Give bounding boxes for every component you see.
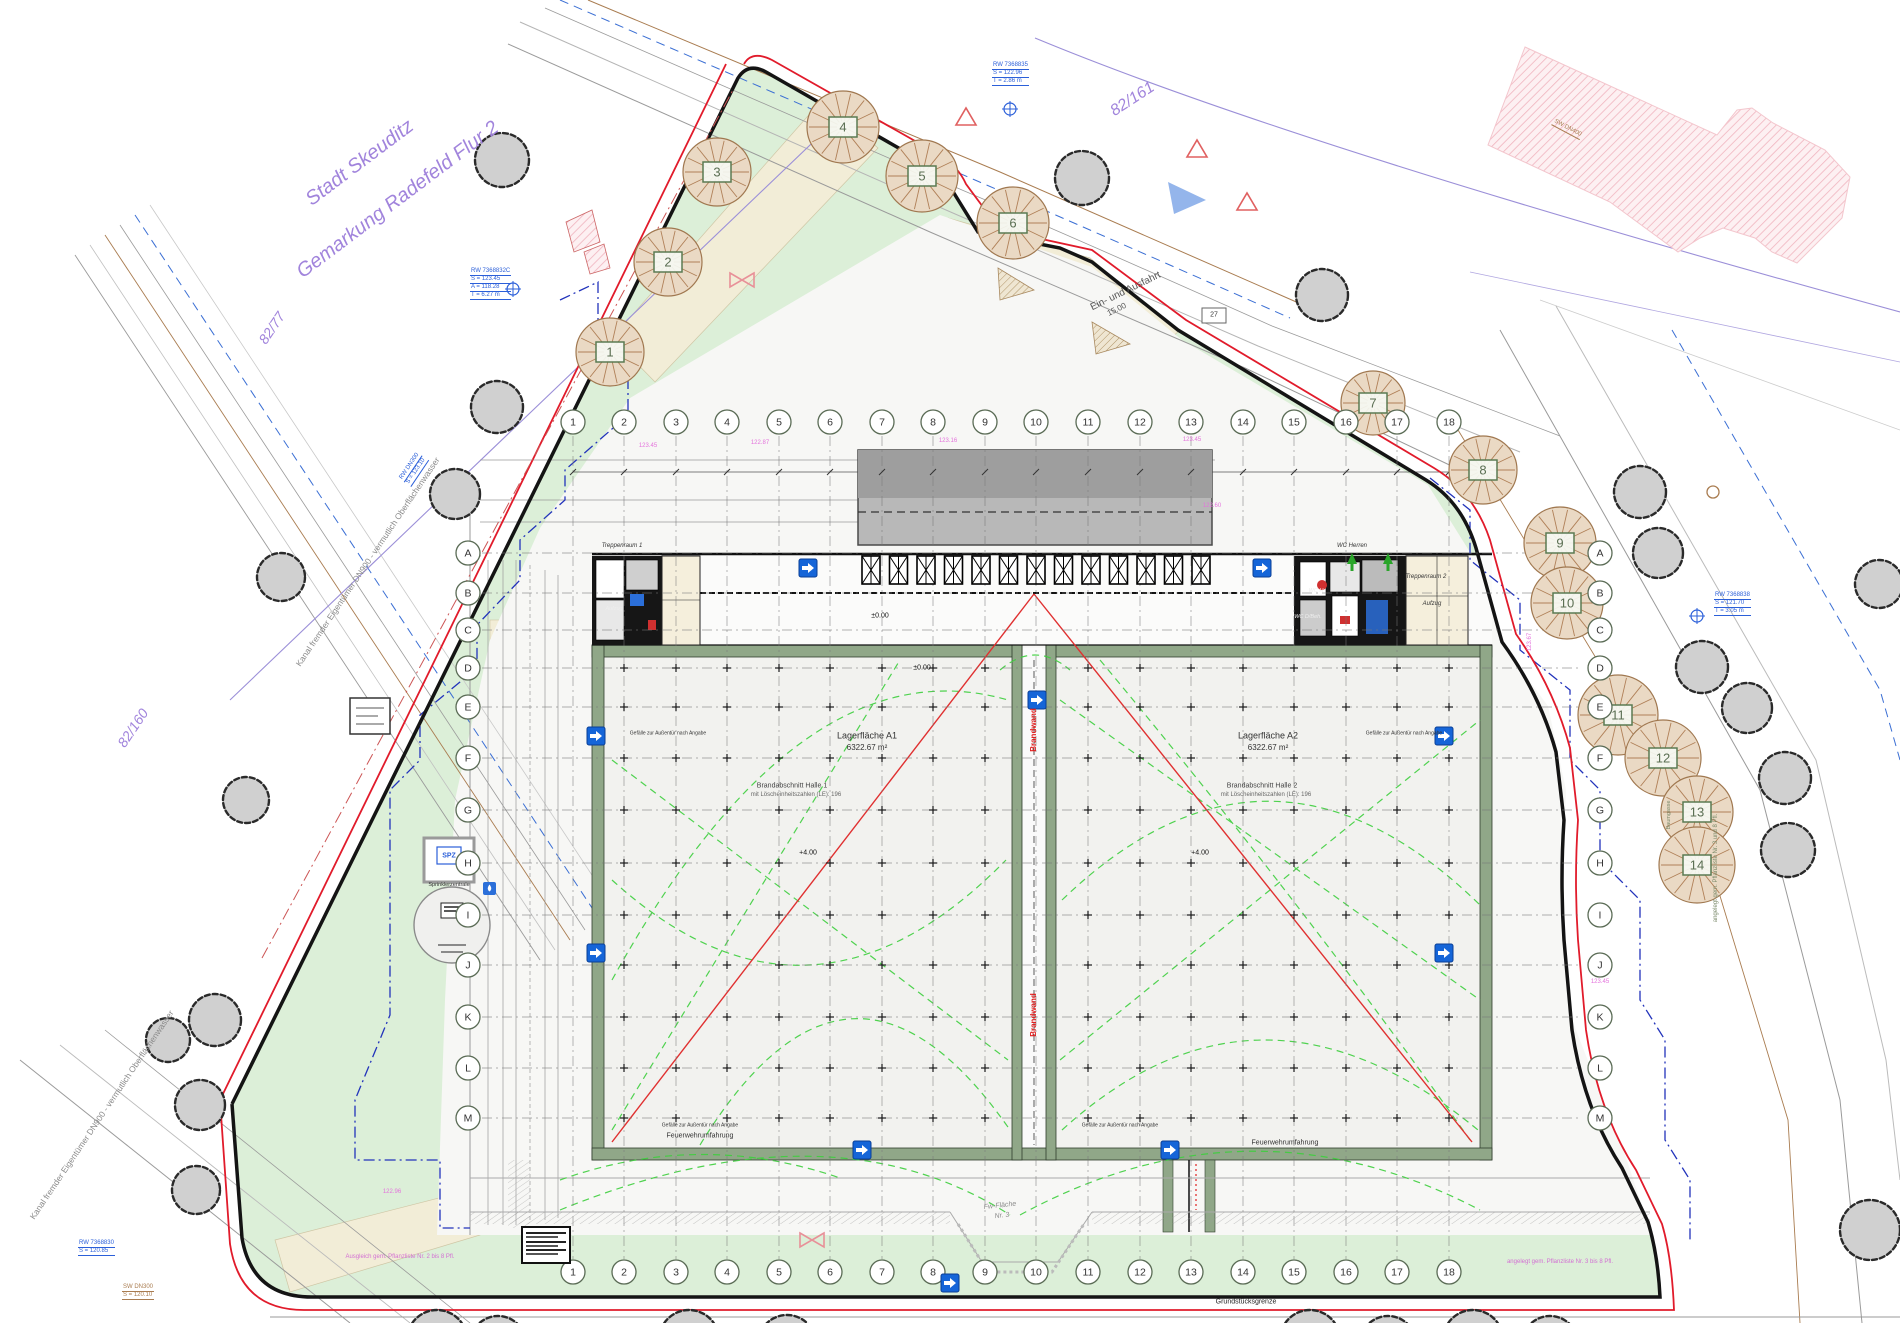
dock-door xyxy=(890,556,908,584)
grid-bubble-label: L xyxy=(465,1063,471,1075)
grid-bubble-label: 3 xyxy=(673,417,679,429)
grid-bubble-label: 3 xyxy=(673,1267,679,1279)
door-swing-icon xyxy=(853,1141,871,1159)
existing-tree-icon xyxy=(1676,641,1728,693)
existing-tree-icon xyxy=(175,1080,225,1130)
grid-bubble-label: 11 xyxy=(1083,1267,1094,1279)
existing-tree-icon xyxy=(1055,151,1109,205)
grid-bubble-label: C xyxy=(1596,625,1604,637)
existing-tree-crown xyxy=(175,1080,225,1130)
grid-bubble-label: G xyxy=(464,805,472,817)
planted-tree-number: 1 xyxy=(606,345,613,360)
grid-letter-right: L xyxy=(1588,1056,1612,1080)
grid-letter-right: D xyxy=(1588,656,1612,680)
grid-letter-left: D xyxy=(456,656,480,680)
existing-tree-icon xyxy=(172,1166,220,1214)
grid-number-top: 3 xyxy=(664,410,688,434)
existing-tree-crown xyxy=(1296,269,1348,321)
door-swing-icon xyxy=(1435,944,1453,962)
office-block-left xyxy=(592,556,700,645)
grid-bubble-label: E xyxy=(464,702,471,714)
grid-letter-left: M xyxy=(456,1106,480,1130)
grid-number-bottom: 13 xyxy=(1179,1260,1203,1284)
grid-bubble-label: 9 xyxy=(982,1267,988,1279)
grid-letter-right: J xyxy=(1588,953,1612,977)
door-swing-icon xyxy=(1253,559,1271,577)
existing-tree-icon xyxy=(1722,683,1772,733)
grid-bubble-label: D xyxy=(1596,663,1604,675)
existing-tree-crown xyxy=(1676,641,1728,693)
grid-letter-right: K xyxy=(1588,1005,1612,1029)
grid-number-bottom: 4 xyxy=(715,1260,739,1284)
existing-tree-icon xyxy=(1633,528,1683,578)
grid-letter-right: M xyxy=(1588,1106,1612,1130)
existing-tree-icon xyxy=(223,777,269,823)
grid-number-top: 7 xyxy=(870,410,894,434)
existing-tree-icon xyxy=(146,1018,190,1062)
grid-bubble-label: B xyxy=(464,588,471,600)
planted-tree-icon: 8 xyxy=(1449,436,1517,504)
grid-number-top: 8 xyxy=(921,410,945,434)
grid-bubble-label: I xyxy=(1599,910,1602,922)
grid-bubble-label: 18 xyxy=(1443,417,1455,429)
grid-bubble-label: 17 xyxy=(1391,1267,1403,1279)
grid-letter-left: H xyxy=(456,851,480,875)
existing-tree-crown xyxy=(471,381,523,433)
site-plan-svg: 1234567891011121314 11223344556677889910… xyxy=(0,0,1900,1323)
grid-bubble-label: 1 xyxy=(570,1267,576,1279)
grid-bubble-label: 8 xyxy=(930,417,936,429)
dock-door xyxy=(862,556,880,584)
door-swing-icon xyxy=(941,1274,959,1292)
grid-bubble-label: 2 xyxy=(621,417,627,429)
planted-tree-icon: 14 xyxy=(1659,827,1735,903)
grid-bubble-label: G xyxy=(1596,805,1604,817)
grid-number-bottom: 15 xyxy=(1282,1260,1306,1284)
planted-tree-number: 9 xyxy=(1556,536,1563,551)
planted-tree-number: 6 xyxy=(1009,216,1016,231)
door-swing-icon xyxy=(1435,727,1453,745)
planted-tree-icon: 5 xyxy=(886,140,958,212)
grid-bubble-label: 7 xyxy=(879,417,885,429)
site-plan-canvas[interactable]: 1234567891011121314 11223344556677889910… xyxy=(0,0,1900,1323)
existing-tree-crown xyxy=(1761,823,1815,877)
existing-tree-icon xyxy=(475,133,529,187)
existing-tree-icon xyxy=(1855,560,1900,608)
grid-bubble-label: 2 xyxy=(621,1267,627,1279)
grid-letter-right: I xyxy=(1588,903,1612,927)
grid-bubble-label: 14 xyxy=(1237,417,1249,429)
grid-bubble-label: D xyxy=(464,663,472,675)
existing-tree-icon xyxy=(1840,1200,1900,1260)
grid-letter-right: B xyxy=(1588,581,1612,605)
grid-number-bottom: 7 xyxy=(870,1260,894,1284)
grid-letter-left: F xyxy=(456,746,480,770)
planted-tree-number: 14 xyxy=(1690,858,1704,873)
planted-tree-number: 11 xyxy=(1611,708,1625,723)
dock-door xyxy=(1110,556,1128,584)
grid-bubble-label: 13 xyxy=(1185,1267,1197,1279)
grid-number-bottom: 3 xyxy=(664,1260,688,1284)
grid-letter-left: E xyxy=(456,695,480,719)
grid-number-bottom: 12 xyxy=(1128,1260,1152,1284)
grid-letter-left: I xyxy=(456,903,480,927)
existing-tree-crown xyxy=(1855,560,1900,608)
door-swing-icon xyxy=(1028,691,1046,709)
dock-door xyxy=(1082,556,1100,584)
grid-number-top: 6 xyxy=(818,410,842,434)
existing-tree-icon xyxy=(257,553,305,601)
existing-tree-icon xyxy=(1296,269,1348,321)
existing-tree-crown xyxy=(758,1315,816,1323)
existing-tree-crown xyxy=(430,469,480,519)
hall-2 xyxy=(1056,657,1480,1148)
grid-number-bottom: 17 xyxy=(1385,1260,1409,1284)
grid-bubble-label: B xyxy=(1596,588,1603,600)
existing-tree-crown xyxy=(223,777,269,823)
grid-bubble-label: E xyxy=(1596,702,1603,714)
grid-bubble-label: 9 xyxy=(982,417,988,429)
building xyxy=(508,554,1492,1232)
existing-tree-crown xyxy=(189,994,241,1046)
grid-bubble-label: 18 xyxy=(1443,1267,1455,1279)
grid-bubble-label: 16 xyxy=(1340,417,1352,429)
grid-bubble-label: K xyxy=(1596,1012,1603,1024)
grid-bubble-label: J xyxy=(1597,960,1602,972)
manhole-icon xyxy=(1689,608,1705,624)
grid-bubble-label: 8 xyxy=(930,1267,936,1279)
existing-tree-crown xyxy=(1759,752,1811,804)
office-block-right xyxy=(1294,556,1468,645)
existing-tree-crown xyxy=(1722,683,1772,733)
grid-bubble-label: 16 xyxy=(1340,1267,1352,1279)
grid-bubble-label: J xyxy=(465,960,470,972)
existing-tree-icon xyxy=(758,1315,816,1323)
grid-bubble-label: 5 xyxy=(776,417,782,429)
loading-canopy xyxy=(858,450,1212,545)
grid-letter-left: C xyxy=(456,618,480,642)
dock-door xyxy=(945,556,963,584)
grid-bubble-label: 1 xyxy=(570,417,576,429)
grid-number-top: 14 xyxy=(1231,410,1255,434)
grid-bubble-label: H xyxy=(1596,858,1604,870)
grid-number-bottom: 14 xyxy=(1231,1260,1255,1284)
grid-letter-right: H xyxy=(1588,851,1612,875)
grid-bubble-label: 15 xyxy=(1288,1267,1300,1279)
grid-bubble-label: M xyxy=(464,1113,473,1125)
existing-tree-crown xyxy=(172,1166,220,1214)
grid-bubble-label: L xyxy=(1597,1063,1603,1075)
planted-tree-icon: 2 xyxy=(634,228,702,296)
dock-door xyxy=(1000,556,1018,584)
grid-bubble-label: A xyxy=(464,548,471,560)
grid-bubble-label: 10 xyxy=(1030,417,1042,429)
grid-bubble-label: M xyxy=(1596,1113,1605,1125)
grid-number-top: 10 xyxy=(1024,410,1048,434)
door-swing-icon xyxy=(1161,1141,1179,1159)
grid-number-bottom: 1 xyxy=(561,1260,585,1284)
existing-tree-crown xyxy=(1055,151,1109,205)
planted-tree-icon: 4 xyxy=(807,91,879,163)
planted-tree-number: 8 xyxy=(1479,463,1486,478)
grid-bubble-label: 5 xyxy=(776,1267,782,1279)
planted-tree-number: 10 xyxy=(1560,596,1574,611)
planted-tree-number: 5 xyxy=(918,169,925,184)
planted-tree-number: 2 xyxy=(664,255,671,270)
warning-triangle-icon xyxy=(1237,193,1257,210)
grid-number-top: 15 xyxy=(1282,410,1306,434)
manhole-icon xyxy=(505,281,521,297)
grid-bubble-label: 15 xyxy=(1288,417,1300,429)
grid-letter-left: K xyxy=(456,1005,480,1029)
door-swing-icon xyxy=(799,559,817,577)
sewer-manhole-icon xyxy=(1707,486,1719,498)
grid-letter-left: A xyxy=(456,541,480,565)
grid-number-top: 16 xyxy=(1334,410,1358,434)
grid-bubble-label: K xyxy=(464,1012,471,1024)
grid-number-bottom: 9 xyxy=(973,1260,997,1284)
grid-bubble-label: 6 xyxy=(827,1267,833,1279)
existing-tree-crown xyxy=(146,1018,190,1062)
grid-letter-right: G xyxy=(1588,798,1612,822)
existing-tree-icon xyxy=(430,469,480,519)
grid-letter-left: B xyxy=(456,581,480,605)
planted-tree-icon: 6 xyxy=(977,187,1049,259)
existing-tree-crown xyxy=(475,133,529,187)
existing-tree-icon xyxy=(1614,466,1666,518)
grid-bubble-label: 7 xyxy=(879,1267,885,1279)
planted-tree-number: 3 xyxy=(713,165,720,180)
grid-bubble-label: A xyxy=(1596,548,1603,560)
grid-bubble-label: 10 xyxy=(1030,1267,1042,1279)
grid-number-bottom: 16 xyxy=(1334,1260,1358,1284)
grid-bubble-label: 4 xyxy=(724,417,730,429)
grid-number-top: 4 xyxy=(715,410,739,434)
grid-bubble-label: 17 xyxy=(1391,417,1403,429)
planted-tree-number: 13 xyxy=(1690,805,1704,820)
existing-tree-crown xyxy=(257,553,305,601)
dock-door xyxy=(1055,556,1073,584)
grid-letter-right: E xyxy=(1588,695,1612,719)
grid-number-top: 9 xyxy=(973,410,997,434)
grid-bubble-label: 6 xyxy=(827,417,833,429)
existing-tree-crown xyxy=(1840,1200,1900,1260)
grid-letter-left: G xyxy=(456,798,480,822)
grid-letter-left: L xyxy=(456,1056,480,1080)
planted-tree-icon: 1 xyxy=(576,318,644,386)
dock-door xyxy=(917,556,935,584)
grid-number-bottom: 5 xyxy=(767,1260,791,1284)
planted-tree-icon: 3 xyxy=(683,138,751,206)
grid-number-bottom: 2 xyxy=(612,1260,636,1284)
grid-number-top: 5 xyxy=(767,410,791,434)
grid-number-bottom: 18 xyxy=(1437,1260,1461,1284)
grid-bubble-label: 14 xyxy=(1237,1267,1249,1279)
grid-number-top: 13 xyxy=(1179,410,1203,434)
grid-number-top: 11 xyxy=(1076,410,1100,434)
grid-letter-left: J xyxy=(456,953,480,977)
warning-triangle-icon xyxy=(956,108,976,125)
grid-bubble-label: 13 xyxy=(1185,417,1197,429)
grid-bubble-label: I xyxy=(467,910,470,922)
planted-tree-number: 12 xyxy=(1656,751,1670,766)
dock-door xyxy=(1192,556,1210,584)
grid-number-bottom: 11 xyxy=(1076,1260,1100,1284)
grid-letter-right: C xyxy=(1588,618,1612,642)
existing-tree-icon xyxy=(189,994,241,1046)
grid-number-top: 2 xyxy=(612,410,636,434)
grid-number-top: 17 xyxy=(1385,410,1409,434)
planted-tree-number: 7 xyxy=(1369,396,1376,411)
grid-bubble-label: 12 xyxy=(1134,1267,1146,1279)
existing-tree-crown xyxy=(1614,466,1666,518)
existing-tree-crown xyxy=(1633,528,1683,578)
existing-tree-icon xyxy=(1761,823,1815,877)
warning-triangle-icon xyxy=(1187,140,1207,157)
existing-tree-icon xyxy=(1759,752,1811,804)
dock-door xyxy=(1165,556,1183,584)
grid-letter-right: F xyxy=(1588,746,1612,770)
grid-bubble-label: F xyxy=(465,753,471,765)
door-swing-icon xyxy=(587,727,605,745)
grid-bubble-label: 4 xyxy=(724,1267,730,1279)
grid-bubble-label: H xyxy=(464,858,472,870)
dock-door xyxy=(1027,556,1045,584)
grid-number-top: 12 xyxy=(1128,410,1152,434)
door-swing-icon xyxy=(587,944,605,962)
grid-number-top: 1 xyxy=(561,410,585,434)
grid-bubble-label: C xyxy=(464,625,472,637)
grid-number-bottom: 10 xyxy=(1024,1260,1048,1284)
dock-door xyxy=(972,556,990,584)
hall-1 xyxy=(604,657,1012,1148)
grid-number-top: 18 xyxy=(1437,410,1461,434)
grid-bubble-label: 11 xyxy=(1083,417,1094,429)
grid-number-bottom: 6 xyxy=(818,1260,842,1284)
grid-bubble-label: 12 xyxy=(1134,417,1146,429)
existing-tree-icon xyxy=(471,381,523,433)
sprinkler-tank xyxy=(414,887,490,963)
grid-bubble-label: F xyxy=(1597,753,1603,765)
grid-letter-right: A xyxy=(1588,541,1612,565)
dock-door xyxy=(1137,556,1155,584)
manhole-icon xyxy=(1002,101,1018,117)
planted-tree-number: 4 xyxy=(839,120,846,135)
